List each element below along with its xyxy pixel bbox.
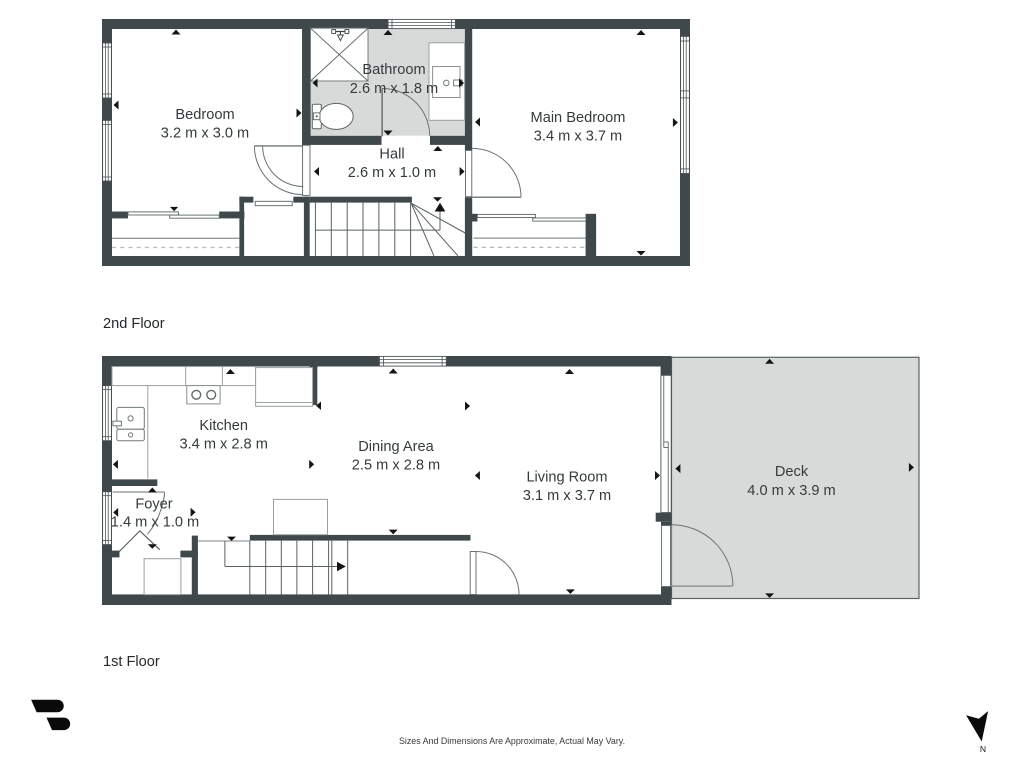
svg-text:3.1 m x 3.7 m: 3.1 m x 3.7 m: [523, 488, 611, 504]
svg-text:Foyer: Foyer: [135, 497, 172, 513]
svg-text:2.6 m x 1.0 m: 2.6 m x 1.0 m: [348, 165, 436, 181]
svg-text:Living Room: Living Room: [526, 470, 607, 486]
svg-text:2.6 m x 1.8 m: 2.6 m x 1.8 m: [350, 81, 438, 97]
svg-text:2nd Floor: 2nd Floor: [103, 316, 165, 332]
svg-text:Kitchen: Kitchen: [199, 418, 248, 434]
svg-text:Deck: Deck: [775, 464, 809, 480]
svg-text:N: N: [980, 744, 986, 754]
svg-text:2.5 m x 2.8 m: 2.5 m x 2.8 m: [352, 458, 440, 474]
svg-text:3.4 m x 2.8 m: 3.4 m x 2.8 m: [179, 437, 267, 453]
svg-text:Main Bedroom: Main Bedroom: [531, 110, 626, 126]
svg-text:3.2 m x 3.0 m: 3.2 m x 3.0 m: [161, 126, 249, 142]
svg-text:Bathroom: Bathroom: [362, 62, 425, 78]
svg-text:1st Floor: 1st Floor: [103, 654, 160, 670]
svg-text:Sizes And Dimensions Are Appro: Sizes And Dimensions Are Approximate, Ac…: [399, 736, 625, 746]
svg-text:Bedroom: Bedroom: [175, 107, 234, 123]
svg-text:Hall: Hall: [379, 147, 404, 163]
svg-text:1.4 m x 1.0 m: 1.4 m x 1.0 m: [111, 515, 199, 531]
svg-text:3.4 m x 3.7 m: 3.4 m x 3.7 m: [534, 129, 622, 145]
svg-text:4.0 m x 3.9 m: 4.0 m x 3.9 m: [747, 483, 835, 499]
svg-text:Dining Area: Dining Area: [358, 439, 434, 455]
